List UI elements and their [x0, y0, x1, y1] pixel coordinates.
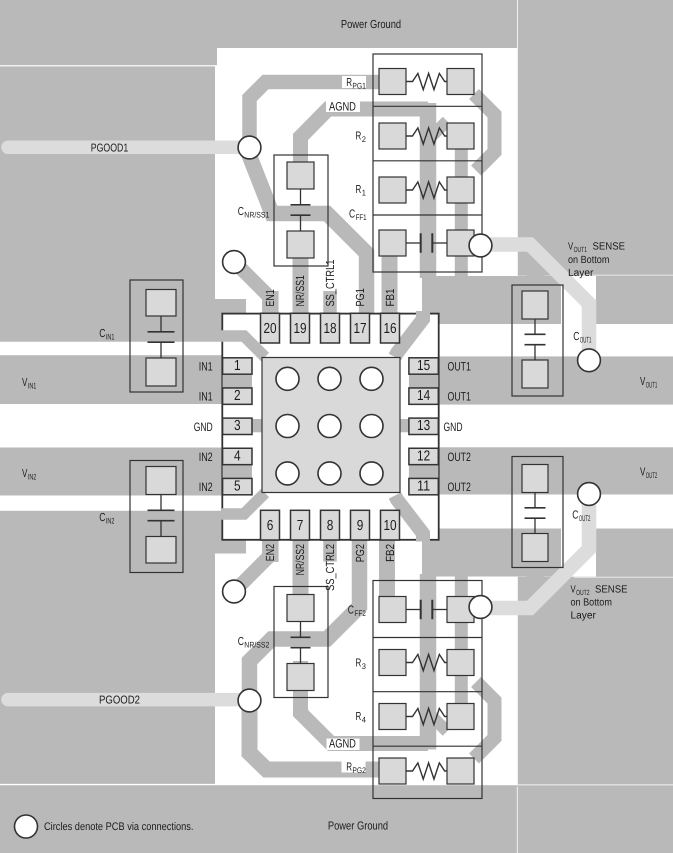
svg-text:13: 13	[417, 418, 430, 434]
svg-text:12: 12	[417, 448, 430, 464]
svg-text:Layer: Layer	[571, 611, 597, 622]
svg-text:V: V	[571, 585, 576, 596]
svg-text:R: R	[356, 130, 362, 143]
svg-text:PGOOD1: PGOOD1	[91, 143, 129, 155]
svg-text:7: 7	[297, 518, 304, 534]
svg-text:V: V	[22, 376, 28, 389]
svg-text:AGND: AGND	[329, 737, 356, 751]
svg-text:IN1: IN1	[106, 332, 115, 341]
svg-text:V: V	[640, 375, 646, 388]
svg-text:V: V	[568, 242, 573, 253]
svg-text:R: R	[346, 76, 352, 89]
svg-text:FF1: FF1	[356, 213, 367, 222]
svg-text:AGND: AGND	[329, 100, 356, 114]
svg-text:Circles denote PCB via connect: Circles denote PCB via connections.	[44, 821, 194, 833]
svg-text:9: 9	[357, 518, 364, 534]
svg-text:PG1: PG1	[352, 81, 366, 90]
svg-text:C: C	[572, 509, 578, 522]
svg-text:8: 8	[327, 518, 334, 534]
svg-text:18: 18	[323, 321, 336, 337]
svg-text:EN1: EN1	[263, 289, 277, 306]
svg-text:IN1: IN1	[28, 381, 37, 390]
svg-text:SS_CTRL2: SS_CTRL2	[323, 544, 337, 591]
svg-text:IN2: IN2	[28, 472, 37, 481]
svg-text:PG2: PG2	[353, 544, 367, 562]
svg-text:OUT2: OUT2	[646, 471, 658, 480]
svg-text:IN2: IN2	[199, 480, 213, 494]
svg-text:2: 2	[234, 388, 241, 404]
svg-text:5: 5	[234, 478, 241, 494]
svg-text:17: 17	[353, 321, 366, 337]
svg-text:IN1: IN1	[199, 360, 213, 374]
svg-text:OUT1: OUT1	[580, 335, 592, 344]
svg-text:PG1: PG1	[353, 288, 367, 306]
svg-text:on Bottom: on Bottom	[571, 598, 612, 609]
svg-text:NR/SS2: NR/SS2	[244, 640, 270, 649]
svg-text:1: 1	[362, 188, 367, 197]
svg-text:20: 20	[263, 321, 276, 337]
svg-text:FB2: FB2	[383, 544, 397, 562]
svg-text:10: 10	[383, 518, 396, 534]
svg-text:OUT2: OUT2	[576, 588, 590, 597]
svg-text:IN2: IN2	[199, 450, 213, 464]
svg-text:IN2: IN2	[106, 516, 115, 525]
svg-text:OUT2: OUT2	[579, 514, 591, 523]
svg-text:GND: GND	[444, 420, 463, 434]
svg-text:SENSE: SENSE	[595, 585, 628, 596]
svg-text:16: 16	[383, 321, 396, 337]
svg-text:SENSE: SENSE	[593, 242, 626, 253]
svg-text:IN1: IN1	[199, 390, 213, 404]
svg-text:EN2: EN2	[263, 544, 277, 561]
svg-text:C: C	[349, 208, 355, 221]
svg-text:GND: GND	[194, 420, 213, 434]
svg-text:3: 3	[234, 418, 241, 434]
svg-text:Power Ground: Power Ground	[341, 18, 401, 31]
svg-text:PGOOD2: PGOOD2	[99, 694, 140, 706]
svg-text:11: 11	[417, 478, 430, 494]
svg-text:14: 14	[417, 388, 430, 404]
svg-text:on Bottom: on Bottom	[568, 255, 609, 266]
svg-text:V: V	[640, 466, 646, 479]
svg-text:R: R	[356, 657, 362, 670]
svg-text:C: C	[99, 327, 105, 340]
svg-text:NR/SS1: NR/SS1	[293, 275, 307, 306]
svg-text:C: C	[573, 330, 579, 343]
svg-text:C: C	[238, 635, 244, 648]
svg-text:SS_CTRL1: SS_CTRL1	[323, 260, 337, 307]
svg-text:Power Ground: Power Ground	[328, 820, 388, 833]
svg-text:FF2: FF2	[354, 609, 366, 618]
svg-text:R: R	[356, 183, 362, 196]
svg-text:2: 2	[362, 135, 367, 144]
svg-text:NR/SS2: NR/SS2	[293, 544, 307, 575]
svg-text:FB1: FB1	[383, 289, 397, 307]
svg-text:C: C	[99, 511, 105, 524]
svg-text:OUT2: OUT2	[448, 450, 472, 464]
svg-text:OUT1: OUT1	[448, 390, 472, 404]
svg-text:OUT1: OUT1	[646, 380, 658, 389]
svg-text:4: 4	[362, 715, 367, 724]
svg-text:15: 15	[417, 358, 430, 374]
svg-text:R: R	[346, 761, 352, 774]
svg-text:PG2: PG2	[352, 766, 366, 775]
svg-text:4: 4	[234, 448, 241, 464]
svg-text:19: 19	[293, 321, 306, 337]
svg-text:OUT1: OUT1	[448, 360, 472, 374]
svg-text:V: V	[22, 467, 28, 480]
svg-text:Layer: Layer	[568, 268, 594, 279]
svg-text:C: C	[348, 604, 354, 617]
svg-text:C: C	[238, 205, 244, 218]
svg-text:6: 6	[267, 518, 274, 534]
svg-text:3: 3	[362, 662, 367, 671]
svg-text:1: 1	[234, 358, 241, 374]
svg-text:R: R	[356, 710, 362, 723]
svg-text:OUT1: OUT1	[574, 245, 588, 254]
svg-text:NR/SS1: NR/SS1	[244, 210, 270, 219]
svg-text:OUT2: OUT2	[448, 480, 472, 494]
